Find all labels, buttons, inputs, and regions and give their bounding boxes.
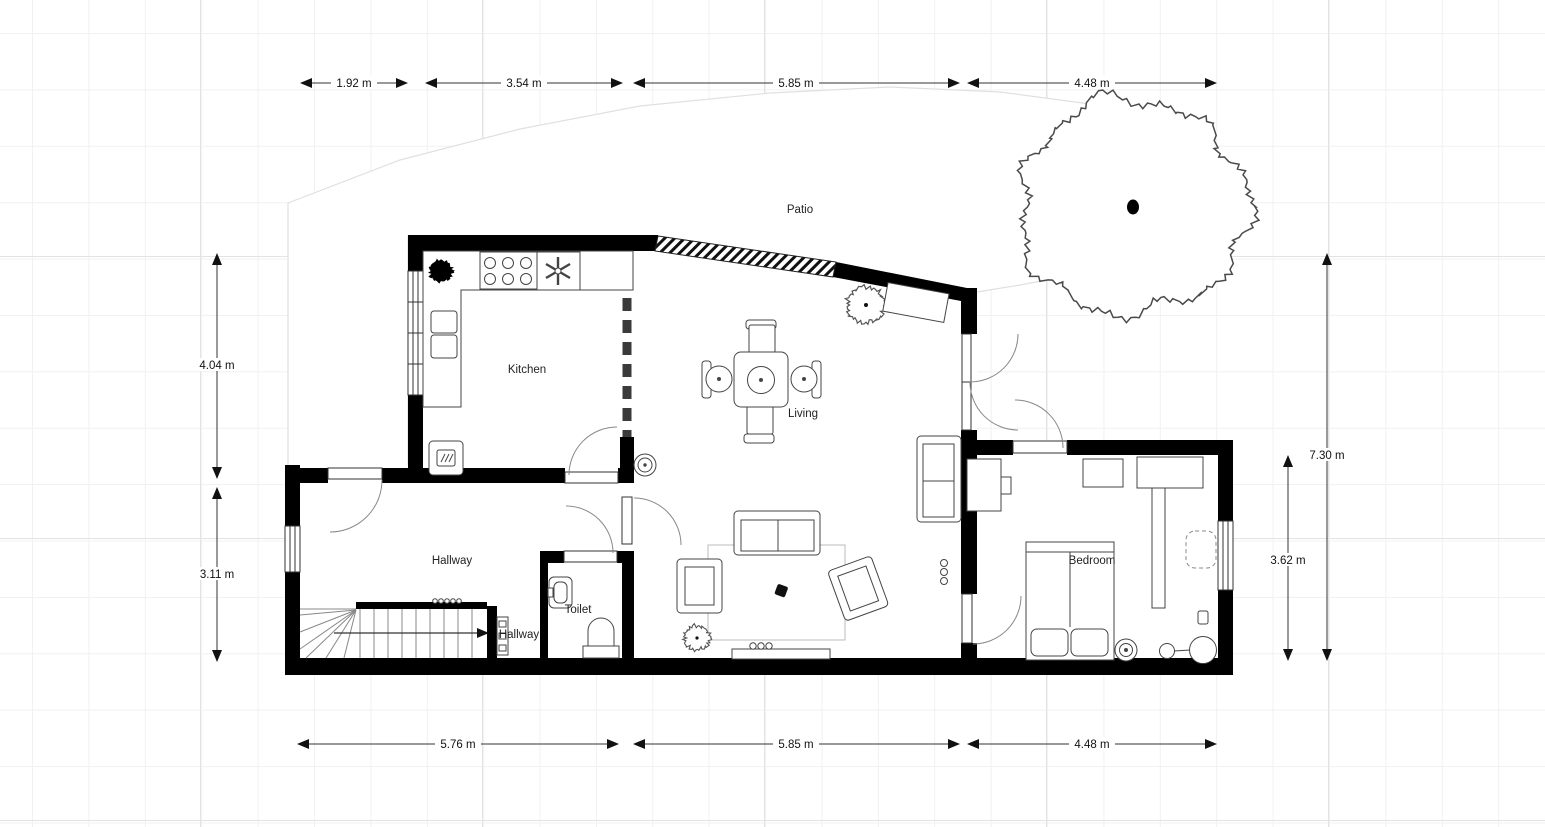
room-label-toilet: Toilet xyxy=(565,604,593,616)
standing-mirror[interactable] xyxy=(1152,488,1165,608)
kitchen-window[interactable] xyxy=(408,271,423,395)
floorplan-canvas[interactable]: Patio Kitchen Living Hallway Toilet Hall… xyxy=(0,0,1545,827)
nightstand[interactable] xyxy=(1083,459,1123,487)
kitchen-sink[interactable] xyxy=(431,311,457,358)
dimension-bottom-2: 5.85 m xyxy=(633,737,960,751)
bedroom-patio-door[interactable] xyxy=(1013,400,1067,453)
svg-text:4.48 m: 4.48 m xyxy=(1074,78,1109,90)
dimension-right-2: 3.62 m xyxy=(1265,455,1311,661)
room-label-patio: Patio xyxy=(787,204,813,216)
dimension-top-4: 4.48 m xyxy=(967,76,1217,90)
loveseat[interactable] xyxy=(734,511,820,555)
svg-text:3.11 m: 3.11 m xyxy=(200,569,234,581)
hallway-window[interactable] xyxy=(285,526,300,572)
room-label-bedroom: Bedroom xyxy=(1069,555,1116,567)
wall-switches xyxy=(941,560,948,585)
dimension-top-1: 1.92 m xyxy=(300,76,408,90)
dimension-right-1: 7.30 m xyxy=(1304,253,1350,661)
room-label-living: Living xyxy=(788,408,818,420)
dimension-bottom-1: 5.76 m xyxy=(297,737,619,751)
ceiling-lamp[interactable] xyxy=(634,454,656,476)
room-label-hallway-small: Hallway xyxy=(499,629,540,641)
loveseat-wall[interactable] xyxy=(917,436,961,522)
room-label-hallway: Hallway xyxy=(432,555,473,567)
bedroom-window[interactable] xyxy=(1218,521,1233,590)
speaker[interactable] xyxy=(1115,639,1137,661)
oven[interactable] xyxy=(429,441,463,475)
svg-text:5.85 m: 5.85 m xyxy=(778,739,813,751)
armchair-left[interactable] xyxy=(677,559,722,613)
svg-text:3.54 m: 3.54 m xyxy=(506,78,541,90)
svg-text:1.92 m: 1.92 m xyxy=(336,78,371,90)
tree-trunk-dot xyxy=(1127,200,1139,215)
dimension-left-1: 4.04 m xyxy=(194,253,240,479)
dresser[interactable] xyxy=(1137,457,1203,488)
svg-text:4.48 m: 4.48 m xyxy=(1074,739,1109,751)
small-item[interactable] xyxy=(1198,611,1208,624)
svg-text:3.62 m: 3.62 m xyxy=(1270,555,1305,567)
stove[interactable] xyxy=(480,252,537,289)
svg-text:7.30 m: 7.30 m xyxy=(1309,450,1344,462)
coat-hooks xyxy=(433,599,462,604)
dimension-top-2: 3.54 m xyxy=(425,76,623,90)
dimension-left-2: 3.11 m xyxy=(194,487,240,662)
dimension-bottom-3: 4.48 m xyxy=(967,737,1217,751)
extractor-fan[interactable] xyxy=(537,252,580,290)
svg-text:5.76 m: 5.76 m xyxy=(440,739,475,751)
french-doors[interactable] xyxy=(962,334,1018,430)
svg-text:4.04 m: 4.04 m xyxy=(199,360,234,372)
svg-text:5.85 m: 5.85 m xyxy=(778,78,813,90)
room-label-kitchen: Kitchen xyxy=(508,364,546,376)
